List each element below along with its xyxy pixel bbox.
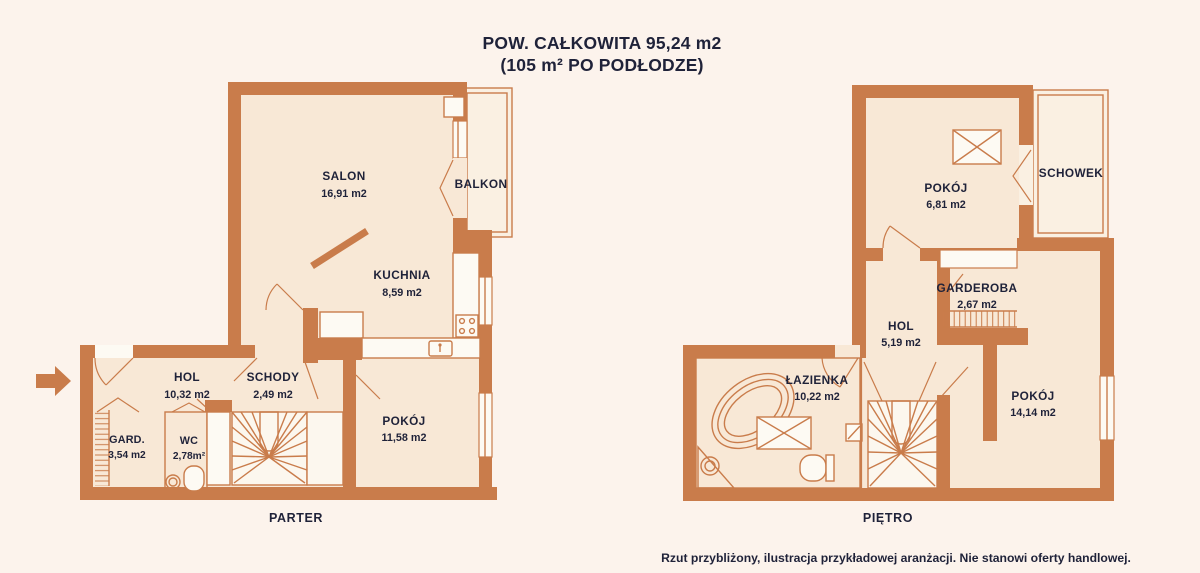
room-label-schody: SCHODY (247, 370, 300, 384)
disclaimer-text: Rzut przybliżony, ilustracja przykładowe… (661, 551, 1131, 565)
room-area-pokoj: 11,58 m2 (381, 432, 426, 444)
garderoba-window (940, 250, 1017, 268)
balcony (462, 88, 512, 237)
room-label-garderoba: GARDEROBA (937, 281, 1018, 295)
parter-plan: SALON 16,91 m2 BALKON KUCHNIA 8,59 m2 HO… (36, 82, 512, 525)
roof-window-small-icon (846, 424, 862, 441)
room-area-wc: 2,78m² (173, 451, 206, 462)
stairs (232, 412, 343, 485)
kitchen-counter-bottom (362, 338, 480, 358)
room-label-hol: HOL (174, 370, 200, 384)
room-label-balkon: BALKON (455, 177, 508, 191)
room-label-kuchnia: KUCHNIA (373, 268, 430, 282)
toilet-icon (800, 455, 834, 481)
room-area-salon: 16,91 m2 (321, 188, 367, 200)
cabinet-icon (444, 97, 464, 117)
room-label-pokoj: POKÓJ (382, 414, 425, 428)
entry-arrow-icon (36, 366, 71, 396)
floor-label-parter: PARTER (269, 511, 323, 525)
room-label-salon: SALON (322, 169, 365, 183)
roof-window-icon (953, 130, 1001, 164)
title-line1: POW. CAŁKOWITA 95,24 m2 (483, 33, 722, 53)
room-label-hol-p: HOL (888, 319, 914, 333)
floor-label-pietro: PIĘTRO (863, 511, 913, 525)
room-area-gard: 3,54 m2 (108, 450, 146, 461)
toilet-icon (184, 466, 204, 491)
room-area-pokoj-1: 6,81 m2 (926, 199, 966, 211)
room-label-lazienka: ŁAZIENKA (786, 373, 849, 387)
garderoba-rail-hatch (943, 311, 1017, 327)
schowek-room (1033, 90, 1108, 238)
room-area-schody: 2,49 m2 (253, 389, 293, 401)
room-area-pokoj-2: 14,14 m2 (1010, 407, 1056, 419)
room-label-schowek: SCHOWEK (1039, 166, 1103, 180)
stair-landing (307, 412, 343, 485)
kitchen-cabinet (320, 312, 363, 338)
room-area-hol: 10,32 m2 (164, 389, 210, 401)
kitchen-counter (453, 253, 479, 338)
floor-plan-drawing: POW. CAŁKOWITA 95,24 m2 (105 m² PO PODŁO… (0, 0, 1200, 573)
pietro-plan: POKÓJ 6,81 m2 SCHOWEK GARDEROBA 2,67 m2 … (683, 85, 1114, 525)
room-label-wc: WC (180, 435, 198, 447)
room-area-garderoba: 2,67 m2 (957, 299, 997, 311)
wardrobe-hatch (95, 410, 109, 486)
closet-icon (207, 412, 230, 485)
room-area-hol-p: 5,19 m2 (881, 337, 921, 349)
roof-window-icon (757, 417, 811, 449)
room-area-kuchnia: 8,59 m2 (382, 287, 422, 299)
floor-plan-page: POW. CAŁKOWITA 95,24 m2 (105 m² PO PODŁO… (0, 0, 1200, 573)
title-line2: (105 m² PO PODŁODZE) (500, 55, 703, 75)
room-label-pokoj-2: POKÓJ (1011, 389, 1054, 403)
room-area-lazienka: 10,22 m2 (794, 391, 840, 403)
room-label-pokoj-1: POKÓJ (924, 181, 967, 195)
room-label-gard: GARD. (109, 434, 145, 446)
